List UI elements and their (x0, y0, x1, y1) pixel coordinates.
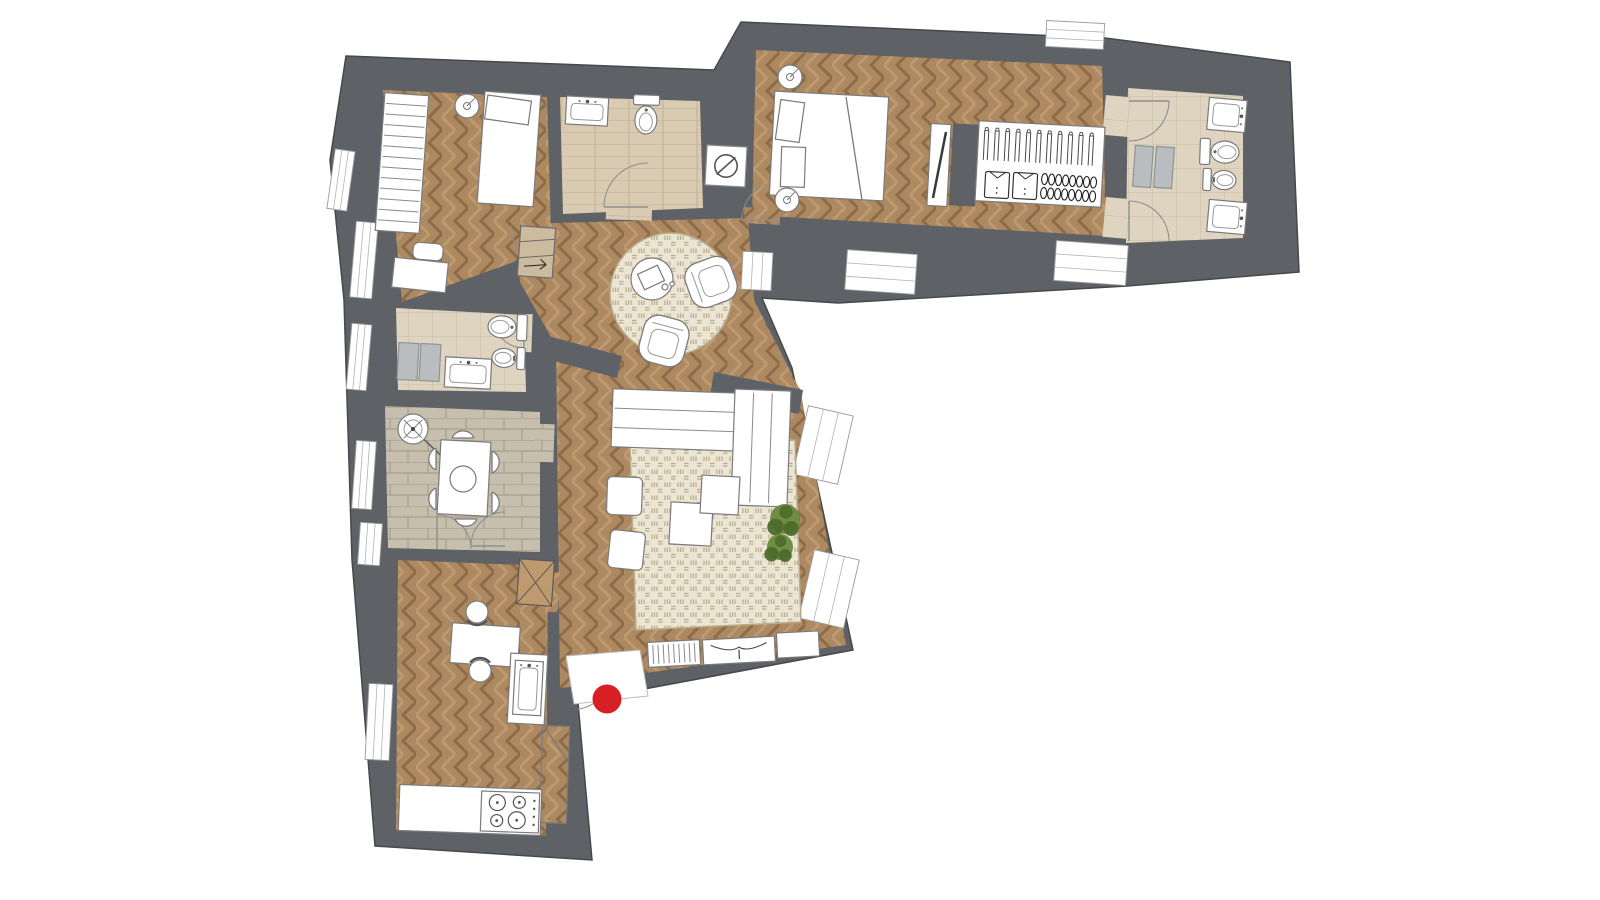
bath-sink (1207, 199, 1248, 234)
decor (670, 282, 674, 286)
floor-plan-canvas (0, 0, 1600, 900)
stove (480, 791, 539, 833)
window (1045, 21, 1104, 50)
folded-shirt (984, 171, 1009, 198)
floor-plan (0, 0, 1600, 900)
side-chair (607, 529, 646, 570)
coffee-table (700, 475, 740, 515)
pantry-nook (539, 726, 569, 824)
kitchen-sink (513, 660, 544, 715)
closet-pillar (949, 123, 979, 206)
vanity-sink (444, 357, 492, 389)
table-decor (450, 466, 476, 492)
pillow (780, 147, 805, 188)
desk-chair (412, 242, 443, 262)
window (352, 440, 377, 509)
sofa-chaise (731, 389, 791, 507)
wc-sink (565, 96, 608, 126)
shaft (516, 559, 554, 606)
doorway-master (744, 207, 781, 225)
console (776, 631, 819, 658)
desk (392, 257, 449, 292)
shower-mat (419, 344, 441, 382)
doorway-wc (606, 201, 653, 221)
doorway-master-bath-top (1102, 95, 1131, 137)
shower-mat (397, 343, 419, 381)
doorway-master-bath-bottom (1102, 197, 1131, 239)
entry-step (517, 226, 555, 278)
window (365, 683, 393, 760)
chair (466, 601, 488, 625)
nightstand-lamp (455, 94, 479, 118)
bath-sink (1207, 97, 1248, 132)
coat-rack (702, 636, 775, 665)
pillow (775, 100, 804, 143)
side-chair (606, 476, 642, 515)
shower-mat (1133, 145, 1154, 187)
washing-machine (705, 145, 747, 187)
decor (662, 284, 668, 290)
sofa (611, 389, 743, 452)
entrance-marker[interactable] (593, 685, 622, 714)
nightstand-lamp (775, 188, 799, 212)
folded-shirt (1012, 172, 1037, 199)
doorway-dining (533, 424, 554, 463)
window (845, 250, 918, 295)
window (741, 251, 773, 291)
shower-mat (1154, 146, 1175, 188)
chair (469, 658, 491, 682)
nightstand-lamp (778, 65, 802, 89)
wardrobe (375, 93, 429, 234)
console-books (647, 640, 700, 668)
window (1054, 241, 1129, 286)
window (358, 522, 383, 565)
